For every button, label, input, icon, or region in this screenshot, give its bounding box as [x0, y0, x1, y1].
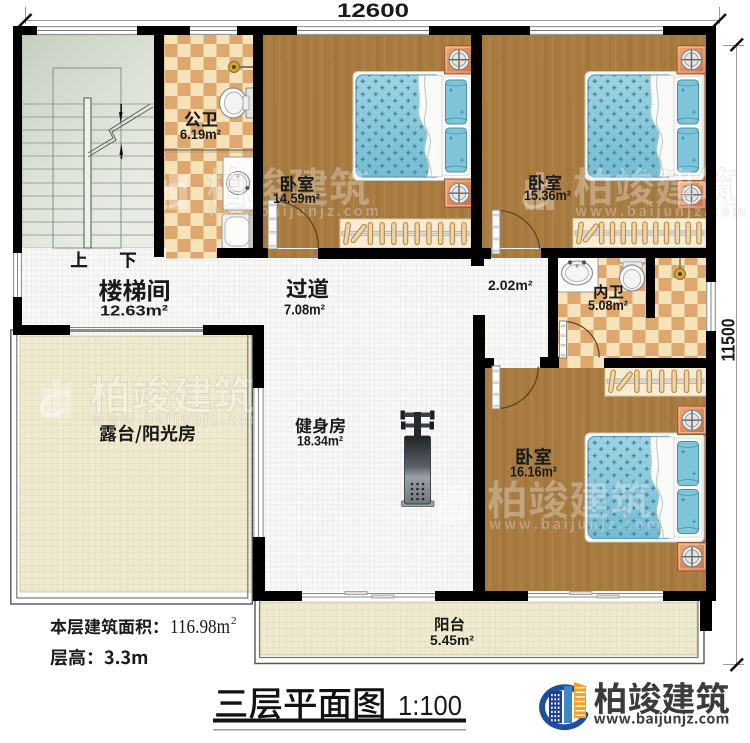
svg-text:116.98m: 116.98m [170, 617, 230, 638]
svg-text:2.02m²: 2.02m² [488, 278, 533, 293]
svg-text:15.36m²: 15.36m² [524, 187, 571, 203]
svg-text:12.63m²: 12.63m² [100, 303, 168, 320]
svg-text:1:100: 1:100 [398, 690, 462, 721]
svg-text:7.08m²: 7.08m² [284, 303, 325, 319]
svg-text:16.16m²: 16.16m² [510, 465, 557, 481]
svg-text:14.59m²: 14.59m² [273, 190, 320, 206]
svg-text:11500: 11500 [719, 319, 739, 362]
svg-text:5.08m²: 5.08m² [588, 297, 628, 313]
svg-text:5.45m²: 5.45m² [430, 633, 475, 648]
svg-text:2: 2 [231, 615, 237, 627]
svg-text:18.34m²: 18.34m² [297, 433, 343, 449]
svg-text:12600: 12600 [337, 1, 409, 22]
svg-text:6.19m²: 6.19m² [180, 127, 221, 142]
